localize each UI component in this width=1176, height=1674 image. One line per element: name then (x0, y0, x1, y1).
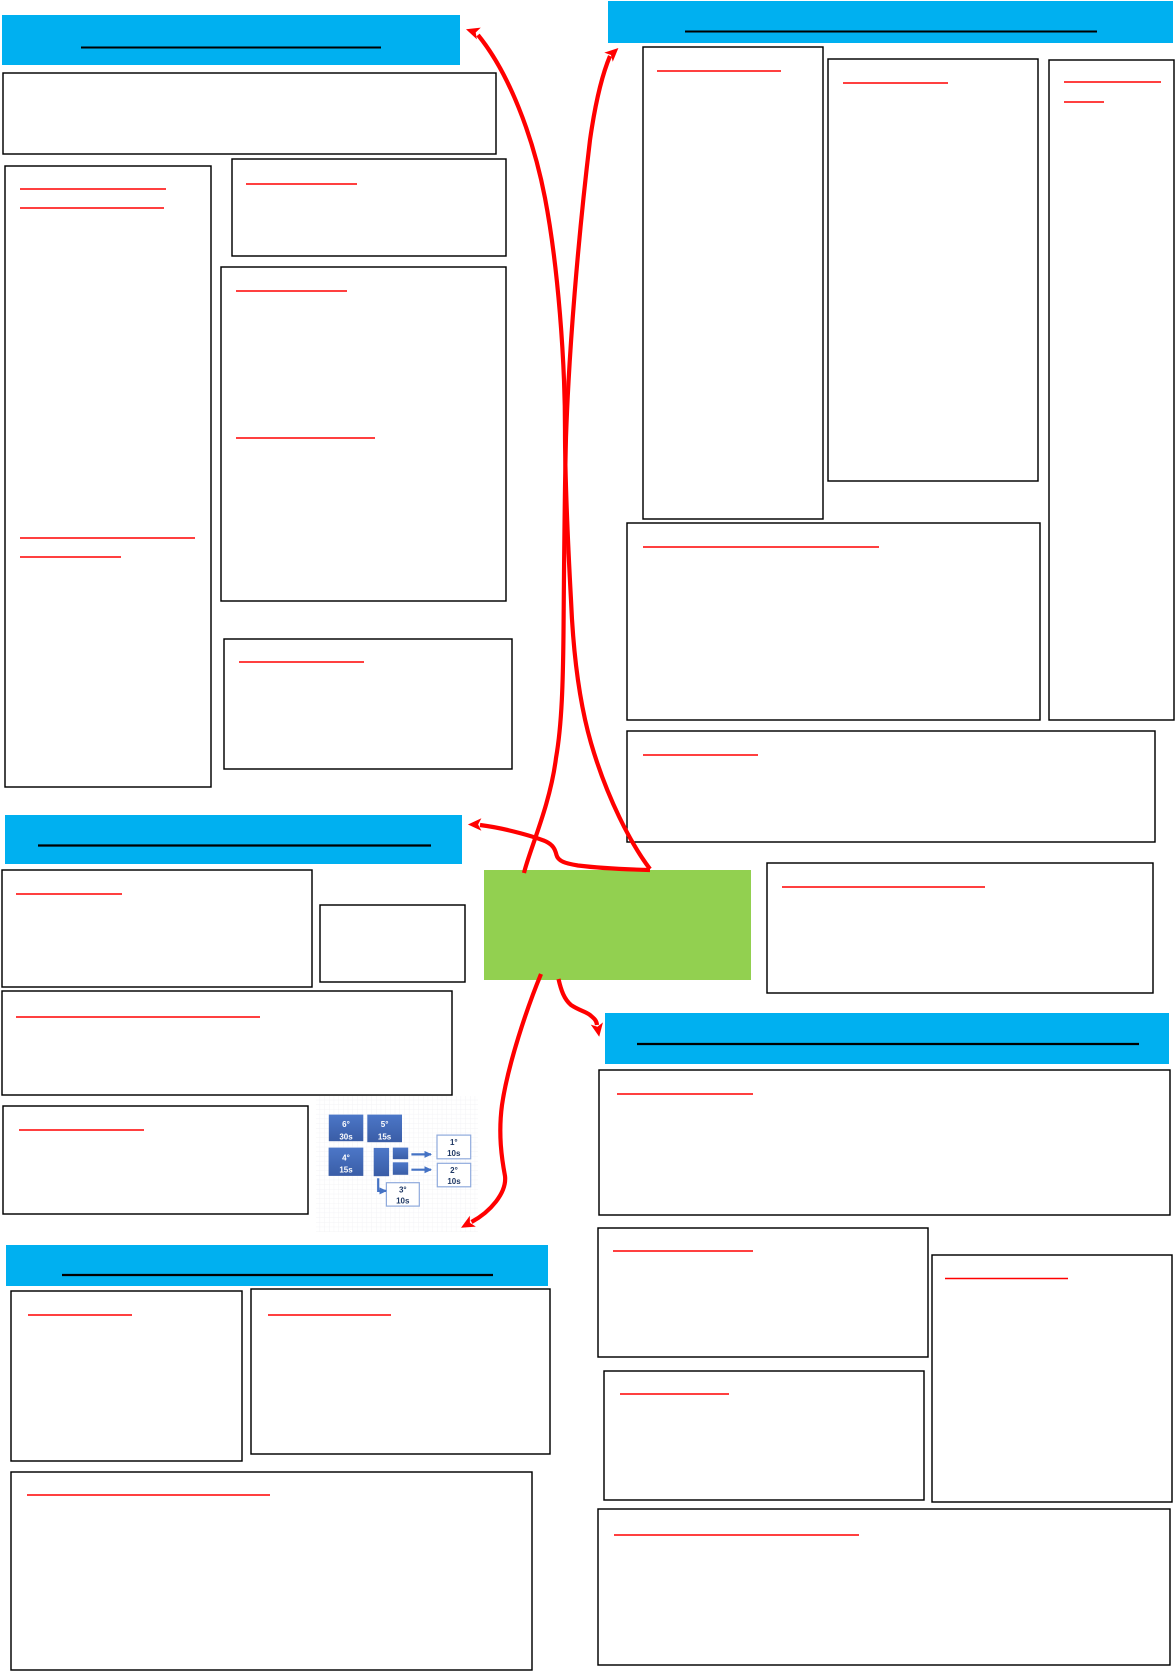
svg-text:15s: 15s (378, 1133, 392, 1142)
svg-text:5°: 5° (381, 1120, 389, 1129)
svg-text:1°: 1° (450, 1138, 458, 1147)
svg-text:10s: 10s (396, 1196, 410, 1205)
svg-text:3°: 3° (399, 1185, 407, 1194)
svg-text:30s: 30s (339, 1133, 353, 1142)
svg-text:10s: 10s (447, 1149, 461, 1158)
svg-text:6°: 6° (342, 1120, 350, 1129)
svg-text:15s: 15s (339, 1166, 353, 1175)
svg-text:4°: 4° (342, 1154, 350, 1163)
svg-text:10s: 10s (447, 1177, 461, 1186)
svg-text:2°: 2° (450, 1166, 458, 1175)
